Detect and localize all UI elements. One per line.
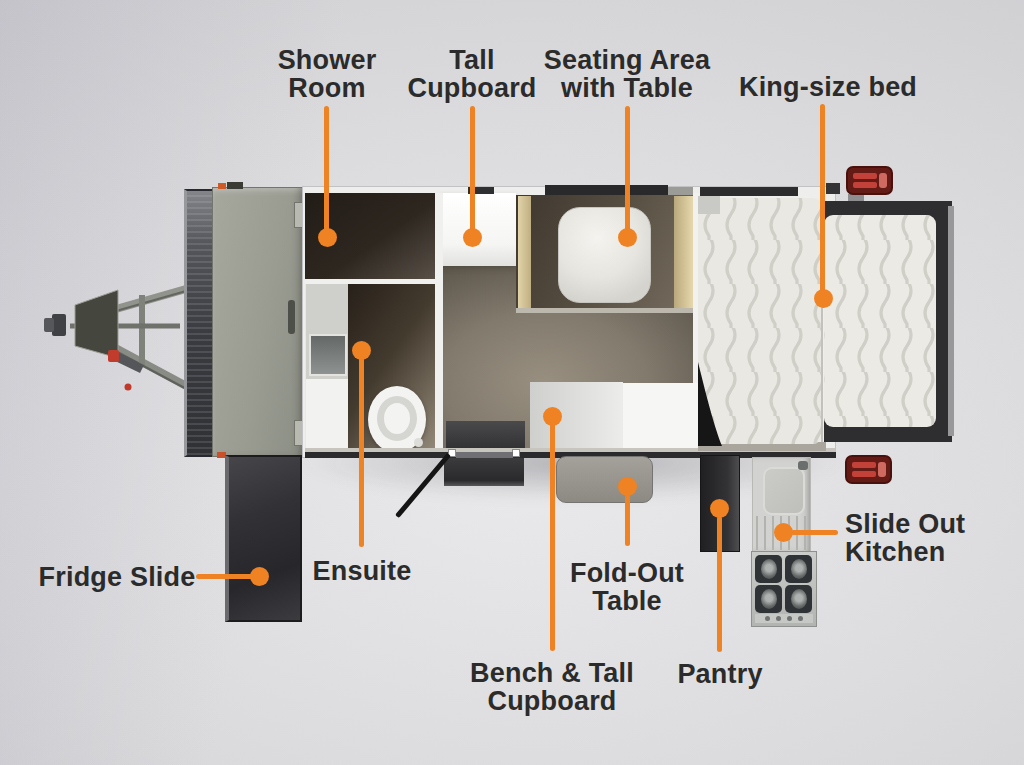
label-line: Ensuite [282,557,442,585]
fridge-slide-box [225,455,302,622]
tail-light-lens [852,471,876,477]
window-top [700,187,798,196]
tail-light-lens [853,173,877,179]
caravan-floorplan-diagram: Shower Room Tall Cupboard Seating Area w… [0,0,1024,765]
kitchen-sink [763,467,805,515]
slide-out-kitchen-dot [774,523,793,542]
burner-icon [785,585,812,613]
label-line: Fold-Out [537,559,717,587]
label-line: Table [537,587,717,615]
tail-light-lens [879,173,887,188]
king-bed-area [698,196,954,446]
front-roof-vent [227,182,243,189]
bench-tall-cupboard-dot [543,407,562,426]
fridge-slide-leader-line [196,574,258,579]
ensuite-dot [352,341,371,360]
window-top [545,185,668,195]
tall-cupboard-interior-area [623,383,698,453]
label-king-size-bed: King-size bed [708,73,948,101]
tall-cupboard-dot [463,228,482,247]
label-line: Pantry [640,660,800,688]
label-line: Seating Area [507,46,747,74]
tail-light-bottom [845,455,892,484]
shower-room-dot [318,228,337,247]
entry-step [444,458,524,486]
kitchen-tap-icon [798,461,808,470]
dinette-table [558,207,651,303]
tail-light-lens [878,462,886,477]
tail-light-lens [853,182,877,188]
shower-room-leader-line [324,106,329,239]
pantry-leader-line [717,516,722,652]
fridge-slide-dot [250,567,269,586]
label-fold-out-table: Fold-Out Table [537,559,717,615]
wall-divider [305,279,438,284]
cooktop-knobs [755,614,813,623]
label-line: King-size bed [708,73,948,101]
front-marker-light [218,183,226,189]
boot-handle-icon [288,300,295,334]
wall-divider [435,193,443,456]
bench-tall-cupboard-leader-line [550,423,555,651]
seating-area-edge [516,308,695,313]
seating-area-dot [618,228,637,247]
label-line: Bench & Tall [442,659,662,687]
label-line: Slide Out [845,510,1005,538]
label-bench-tall-cupboard: Bench & Tall Cupboard [442,659,662,715]
king-bed-leader-line [820,104,825,300]
dinette-seat-left [518,196,531,309]
ensuite-leader-line [359,357,364,547]
seating-area-leader-line [625,106,630,239]
slide-out-kitchen-leader-line [791,530,838,535]
pantry-dot [710,499,729,518]
burner-icon [755,585,782,613]
king-bed-dot [814,289,833,308]
toilet-seat-ring [377,396,417,441]
label-line: Fridge Slide [37,563,197,591]
fold-out-table-dot [618,477,637,496]
wall-trim [668,187,693,195]
toilet-flush-button [414,438,423,447]
burner-icon [785,555,812,583]
label-fridge-slide: Fridge Slide [37,563,197,591]
label-line: Kitchen [845,538,1005,566]
ensuite-sink [309,334,347,376]
tail-light-top [846,166,893,195]
fold-out-table-leader-line [625,494,630,546]
label-line: Cupboard [442,687,662,715]
label-pantry: Pantry [640,660,800,688]
door-hinge-icon [512,449,520,457]
dinette-seat-right [674,196,693,309]
ensuite-cabinet [306,379,348,455]
label-slide-out-kitchen: Slide Out Kitchen [845,510,1005,566]
tail-light-lens [852,462,876,468]
burner-icon [755,555,782,583]
tall-cupboard-leader-line [470,106,475,239]
stone-guard-mesh [184,189,214,457]
label-ensuite: Ensuite [282,557,442,585]
wall-block [826,183,840,194]
cooktop [751,551,817,627]
toilet [368,386,426,453]
fold-out-table [556,456,653,503]
